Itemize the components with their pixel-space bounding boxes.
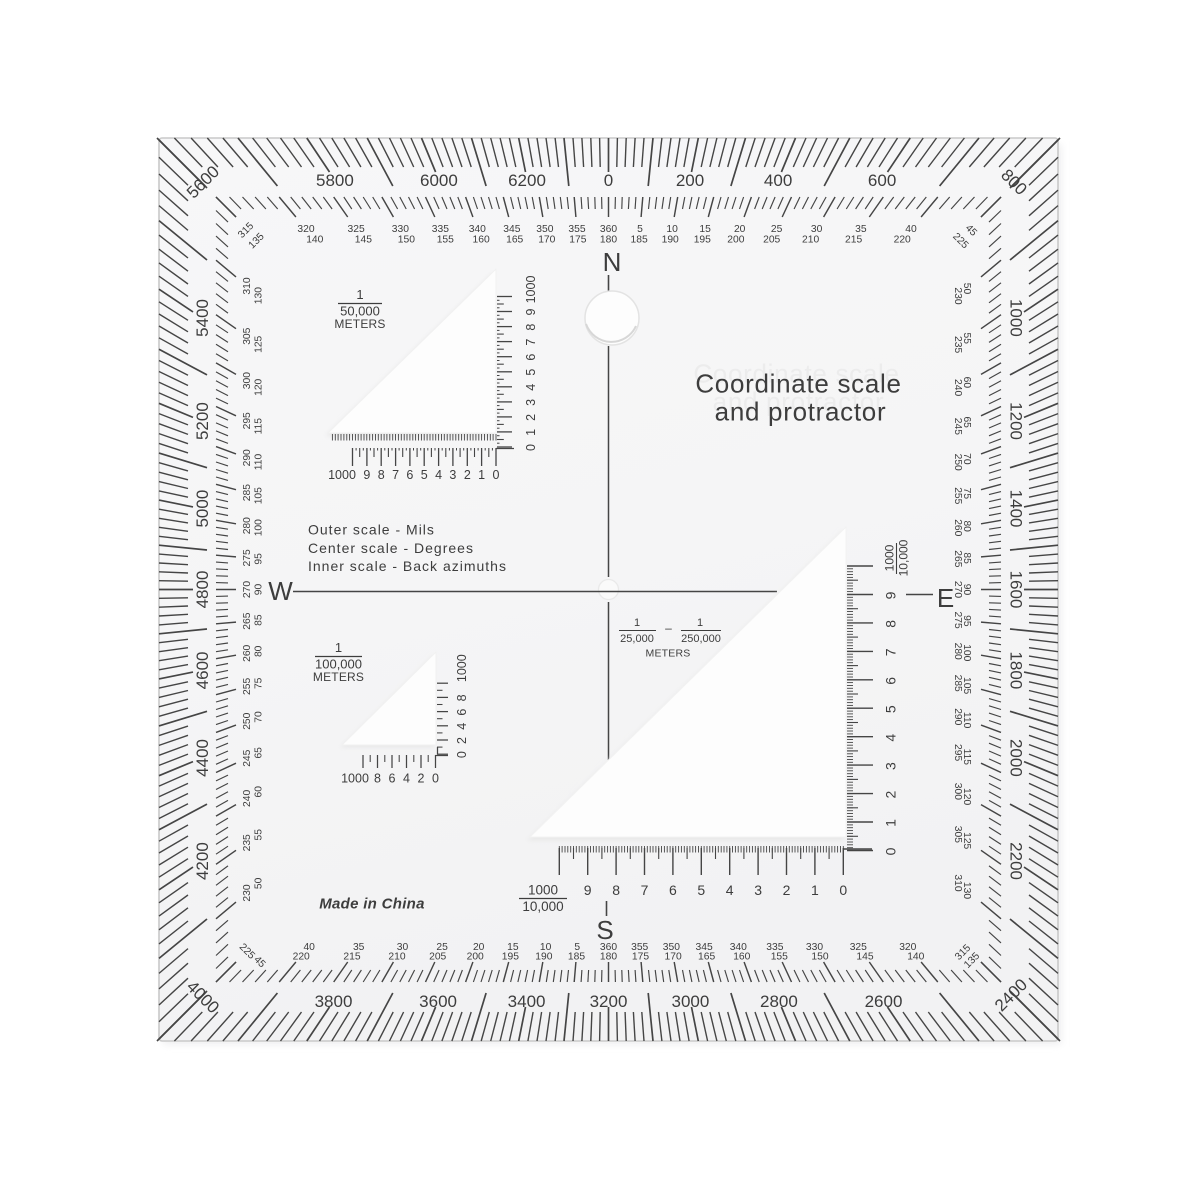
svg-text:9: 9 — [584, 882, 592, 898]
svg-text:9: 9 — [882, 591, 898, 599]
svg-text:0: 0 — [493, 468, 500, 482]
svg-text:2: 2 — [418, 772, 425, 786]
svg-text:10: 10 — [666, 224, 678, 235]
svg-text:160: 160 — [733, 952, 750, 963]
svg-text:8: 8 — [612, 882, 620, 898]
svg-text:5: 5 — [637, 224, 643, 235]
svg-text:275: 275 — [952, 612, 963, 629]
svg-text:3600: 3600 — [419, 992, 457, 1011]
svg-text:2000: 2000 — [1006, 739, 1025, 777]
svg-text:6200: 6200 — [508, 171, 546, 190]
svg-text:3: 3 — [754, 882, 762, 898]
svg-text:75: 75 — [254, 677, 265, 689]
svg-text:215: 215 — [343, 952, 360, 963]
svg-text:W: W — [268, 576, 293, 606]
svg-text:210: 210 — [388, 952, 405, 963]
svg-text:210: 210 — [802, 235, 819, 246]
svg-text:40: 40 — [905, 224, 917, 235]
svg-text:250: 250 — [952, 454, 963, 471]
svg-text:170: 170 — [665, 952, 682, 963]
svg-text:1: 1 — [697, 617, 703, 629]
svg-text:1: 1 — [882, 819, 898, 827]
svg-text:170: 170 — [538, 235, 555, 246]
svg-text:250: 250 — [242, 712, 253, 729]
svg-text:1000: 1000 — [455, 654, 469, 682]
svg-text:55: 55 — [254, 829, 265, 841]
svg-text:0: 0 — [524, 444, 538, 451]
svg-text:8: 8 — [374, 772, 381, 786]
svg-text:1000: 1000 — [883, 544, 897, 571]
svg-text:4: 4 — [524, 384, 538, 391]
svg-text:4200: 4200 — [193, 842, 212, 880]
svg-text:10,000: 10,000 — [896, 539, 910, 576]
svg-text:METERS: METERS — [646, 648, 691, 660]
svg-text:5200: 5200 — [193, 402, 212, 440]
svg-text:115: 115 — [254, 418, 265, 435]
svg-text:100: 100 — [254, 519, 265, 536]
svg-text:285: 285 — [242, 484, 253, 501]
svg-text:240: 240 — [242, 790, 253, 807]
svg-text:145: 145 — [856, 952, 873, 963]
svg-text:305: 305 — [242, 327, 253, 344]
svg-text:6: 6 — [406, 468, 413, 482]
svg-text:Outer scale - Mils: Outer scale - Mils — [308, 522, 435, 538]
svg-text:2600: 2600 — [865, 992, 903, 1011]
svg-text:25: 25 — [771, 224, 783, 235]
svg-text:3000: 3000 — [671, 992, 709, 1011]
svg-text:N: N — [603, 247, 622, 277]
svg-text:4600: 4600 — [193, 651, 212, 689]
svg-text:0: 0 — [882, 847, 898, 855]
svg-text:200: 200 — [676, 171, 704, 190]
svg-text:270: 270 — [242, 581, 253, 598]
svg-text:2: 2 — [455, 737, 469, 744]
svg-text:50: 50 — [254, 877, 265, 889]
svg-text:8: 8 — [455, 694, 469, 701]
svg-text:5: 5 — [697, 882, 705, 898]
svg-text:7: 7 — [641, 882, 649, 898]
svg-text:65: 65 — [254, 747, 265, 759]
svg-text:1: 1 — [335, 640, 342, 655]
svg-text:8: 8 — [524, 324, 538, 331]
svg-text:200: 200 — [467, 952, 484, 963]
svg-text:–: – — [665, 621, 672, 635]
svg-text:1000: 1000 — [341, 772, 369, 786]
svg-text:355: 355 — [568, 224, 585, 235]
svg-text:105: 105 — [254, 487, 265, 504]
svg-text:1: 1 — [478, 468, 485, 482]
svg-text:265: 265 — [952, 550, 963, 567]
svg-text:6000: 6000 — [420, 171, 458, 190]
svg-text:255: 255 — [952, 487, 963, 504]
svg-text:3: 3 — [449, 468, 456, 482]
svg-text:280: 280 — [242, 517, 253, 534]
svg-text:285: 285 — [952, 675, 963, 692]
svg-text:Coordinate scale: Coordinate scale — [695, 369, 901, 399]
svg-text:235: 235 — [242, 834, 253, 851]
svg-text:2: 2 — [464, 468, 471, 482]
svg-text:9: 9 — [363, 468, 370, 482]
svg-text:3: 3 — [882, 762, 898, 770]
svg-text:6: 6 — [524, 354, 538, 361]
svg-text:295: 295 — [952, 744, 963, 761]
svg-text:150: 150 — [398, 235, 415, 246]
svg-text:3800: 3800 — [315, 992, 353, 1011]
svg-text:110: 110 — [254, 454, 265, 471]
svg-text:4: 4 — [435, 468, 442, 482]
svg-text:1800: 1800 — [1006, 651, 1025, 689]
svg-text:1000: 1000 — [524, 276, 538, 304]
svg-text:90: 90 — [254, 584, 265, 596]
svg-text:1: 1 — [524, 429, 538, 436]
svg-text:310: 310 — [952, 874, 963, 891]
svg-text:330: 330 — [392, 224, 409, 235]
svg-text:220: 220 — [894, 235, 911, 246]
svg-text:2800: 2800 — [760, 992, 798, 1011]
svg-text:0: 0 — [455, 751, 469, 758]
svg-text:4400: 4400 — [193, 739, 212, 777]
svg-text:6: 6 — [389, 772, 396, 786]
svg-text:0: 0 — [432, 772, 439, 786]
svg-text:215: 215 — [845, 235, 862, 246]
svg-text:295: 295 — [242, 412, 253, 429]
svg-text:300: 300 — [242, 372, 253, 389]
svg-text:4: 4 — [403, 772, 410, 786]
svg-text:5000: 5000 — [193, 490, 212, 528]
svg-text:165: 165 — [698, 952, 715, 963]
svg-text:275: 275 — [242, 549, 253, 566]
svg-text:130: 130 — [254, 287, 265, 304]
svg-text:1000: 1000 — [328, 468, 356, 482]
svg-text:1: 1 — [634, 617, 640, 629]
svg-text:160: 160 — [473, 235, 490, 246]
svg-text:2200: 2200 — [1006, 842, 1025, 880]
svg-text:180: 180 — [600, 952, 617, 963]
svg-text:3200: 3200 — [590, 992, 628, 1011]
svg-text:4: 4 — [726, 882, 734, 898]
svg-text:E: E — [937, 583, 954, 613]
svg-text:125: 125 — [254, 335, 265, 352]
svg-text:7: 7 — [882, 648, 898, 656]
svg-text:25,000: 25,000 — [620, 633, 654, 645]
svg-text:8: 8 — [378, 468, 385, 482]
svg-text:140: 140 — [907, 952, 924, 963]
svg-text:35: 35 — [855, 224, 867, 235]
svg-text:325: 325 — [348, 224, 365, 235]
svg-text:80: 80 — [254, 645, 265, 657]
svg-text:360: 360 — [600, 224, 617, 235]
svg-text:METERS: METERS — [334, 317, 385, 331]
svg-text:5400: 5400 — [193, 299, 212, 337]
svg-text:7: 7 — [392, 468, 399, 482]
svg-text:1600: 1600 — [1006, 571, 1025, 609]
svg-text:3400: 3400 — [508, 992, 546, 1011]
svg-text:6: 6 — [455, 709, 469, 716]
svg-text:195: 195 — [502, 952, 519, 963]
svg-text:5800: 5800 — [316, 171, 354, 190]
svg-text:1200: 1200 — [1006, 402, 1025, 440]
svg-text:230: 230 — [242, 884, 253, 901]
svg-text:155: 155 — [437, 235, 454, 246]
svg-text:300: 300 — [952, 783, 963, 800]
svg-text:0: 0 — [839, 882, 847, 898]
svg-text:305: 305 — [952, 826, 963, 843]
svg-text:and protractor: and protractor — [715, 397, 887, 427]
svg-text:4800: 4800 — [193, 571, 212, 609]
svg-text:4: 4 — [455, 723, 469, 730]
svg-text:30: 30 — [811, 224, 823, 235]
svg-text:260: 260 — [952, 519, 963, 536]
svg-text:235: 235 — [952, 336, 963, 353]
svg-text:20: 20 — [734, 224, 746, 235]
svg-text:60: 60 — [254, 786, 265, 798]
svg-text:340: 340 — [469, 224, 486, 235]
svg-text:2: 2 — [783, 882, 791, 898]
svg-text:Inner scale - Back azimuths: Inner scale - Back azimuths — [308, 558, 507, 574]
svg-text:350: 350 — [536, 224, 553, 235]
svg-text:Made in China: Made in China — [319, 896, 425, 913]
svg-text:6: 6 — [669, 882, 677, 898]
svg-text:95: 95 — [254, 553, 265, 565]
svg-text:7: 7 — [524, 339, 538, 346]
svg-text:280: 280 — [952, 643, 963, 660]
svg-text:2: 2 — [524, 414, 538, 421]
svg-text:205: 205 — [763, 235, 780, 246]
svg-text:290: 290 — [242, 449, 253, 466]
svg-text:200: 200 — [727, 235, 744, 246]
svg-text:150: 150 — [811, 952, 828, 963]
svg-text:400: 400 — [764, 171, 792, 190]
svg-text:190: 190 — [662, 235, 679, 246]
svg-text:190: 190 — [535, 952, 552, 963]
svg-text:3: 3 — [524, 399, 538, 406]
svg-text:4: 4 — [882, 734, 898, 742]
svg-text:1000: 1000 — [528, 883, 558, 898]
svg-text:1400: 1400 — [1006, 490, 1025, 528]
svg-text:METERS: METERS — [313, 670, 364, 684]
svg-text:335: 335 — [432, 224, 449, 235]
svg-text:245: 245 — [242, 749, 253, 766]
svg-text:1: 1 — [811, 882, 819, 898]
svg-text:5: 5 — [421, 468, 428, 482]
svg-text:205: 205 — [429, 952, 446, 963]
svg-text:1000: 1000 — [1006, 299, 1025, 337]
svg-text:145: 145 — [355, 235, 372, 246]
svg-text:245: 245 — [952, 418, 963, 435]
svg-text:1: 1 — [356, 287, 363, 302]
svg-text:5: 5 — [524, 369, 538, 376]
svg-text:220: 220 — [293, 952, 310, 963]
svg-text:345: 345 — [503, 224, 520, 235]
svg-text:320: 320 — [297, 224, 314, 235]
svg-text:185: 185 — [568, 952, 585, 963]
svg-text:S: S — [596, 915, 613, 945]
svg-text:Center scale - Degrees: Center scale - Degrees — [308, 540, 474, 556]
svg-text:6: 6 — [882, 677, 898, 685]
svg-text:175: 175 — [569, 235, 586, 246]
svg-text:5: 5 — [882, 705, 898, 713]
svg-text:195: 195 — [694, 235, 711, 246]
svg-text:290: 290 — [952, 708, 963, 725]
svg-text:260: 260 — [242, 644, 253, 661]
svg-text:165: 165 — [506, 235, 523, 246]
svg-text:230: 230 — [952, 287, 963, 304]
svg-text:240: 240 — [952, 379, 963, 396]
svg-text:600: 600 — [868, 171, 896, 190]
svg-text:180: 180 — [600, 235, 617, 246]
svg-text:265: 265 — [242, 612, 253, 629]
svg-text:140: 140 — [306, 235, 323, 246]
svg-text:15: 15 — [699, 224, 711, 235]
svg-text:310: 310 — [242, 277, 253, 294]
svg-text:255: 255 — [242, 678, 253, 695]
svg-text:185: 185 — [631, 235, 648, 246]
svg-text:8: 8 — [882, 620, 898, 628]
svg-text:70: 70 — [254, 711, 265, 723]
svg-text:85: 85 — [254, 614, 265, 626]
svg-text:175: 175 — [632, 952, 649, 963]
svg-text:155: 155 — [771, 952, 788, 963]
svg-text:120: 120 — [254, 378, 265, 395]
svg-text:0: 0 — [604, 171, 613, 190]
svg-text:2: 2 — [882, 790, 898, 798]
svg-text:10,000: 10,000 — [522, 899, 563, 914]
svg-text:9: 9 — [524, 308, 538, 315]
svg-text:250,000: 250,000 — [681, 633, 721, 645]
